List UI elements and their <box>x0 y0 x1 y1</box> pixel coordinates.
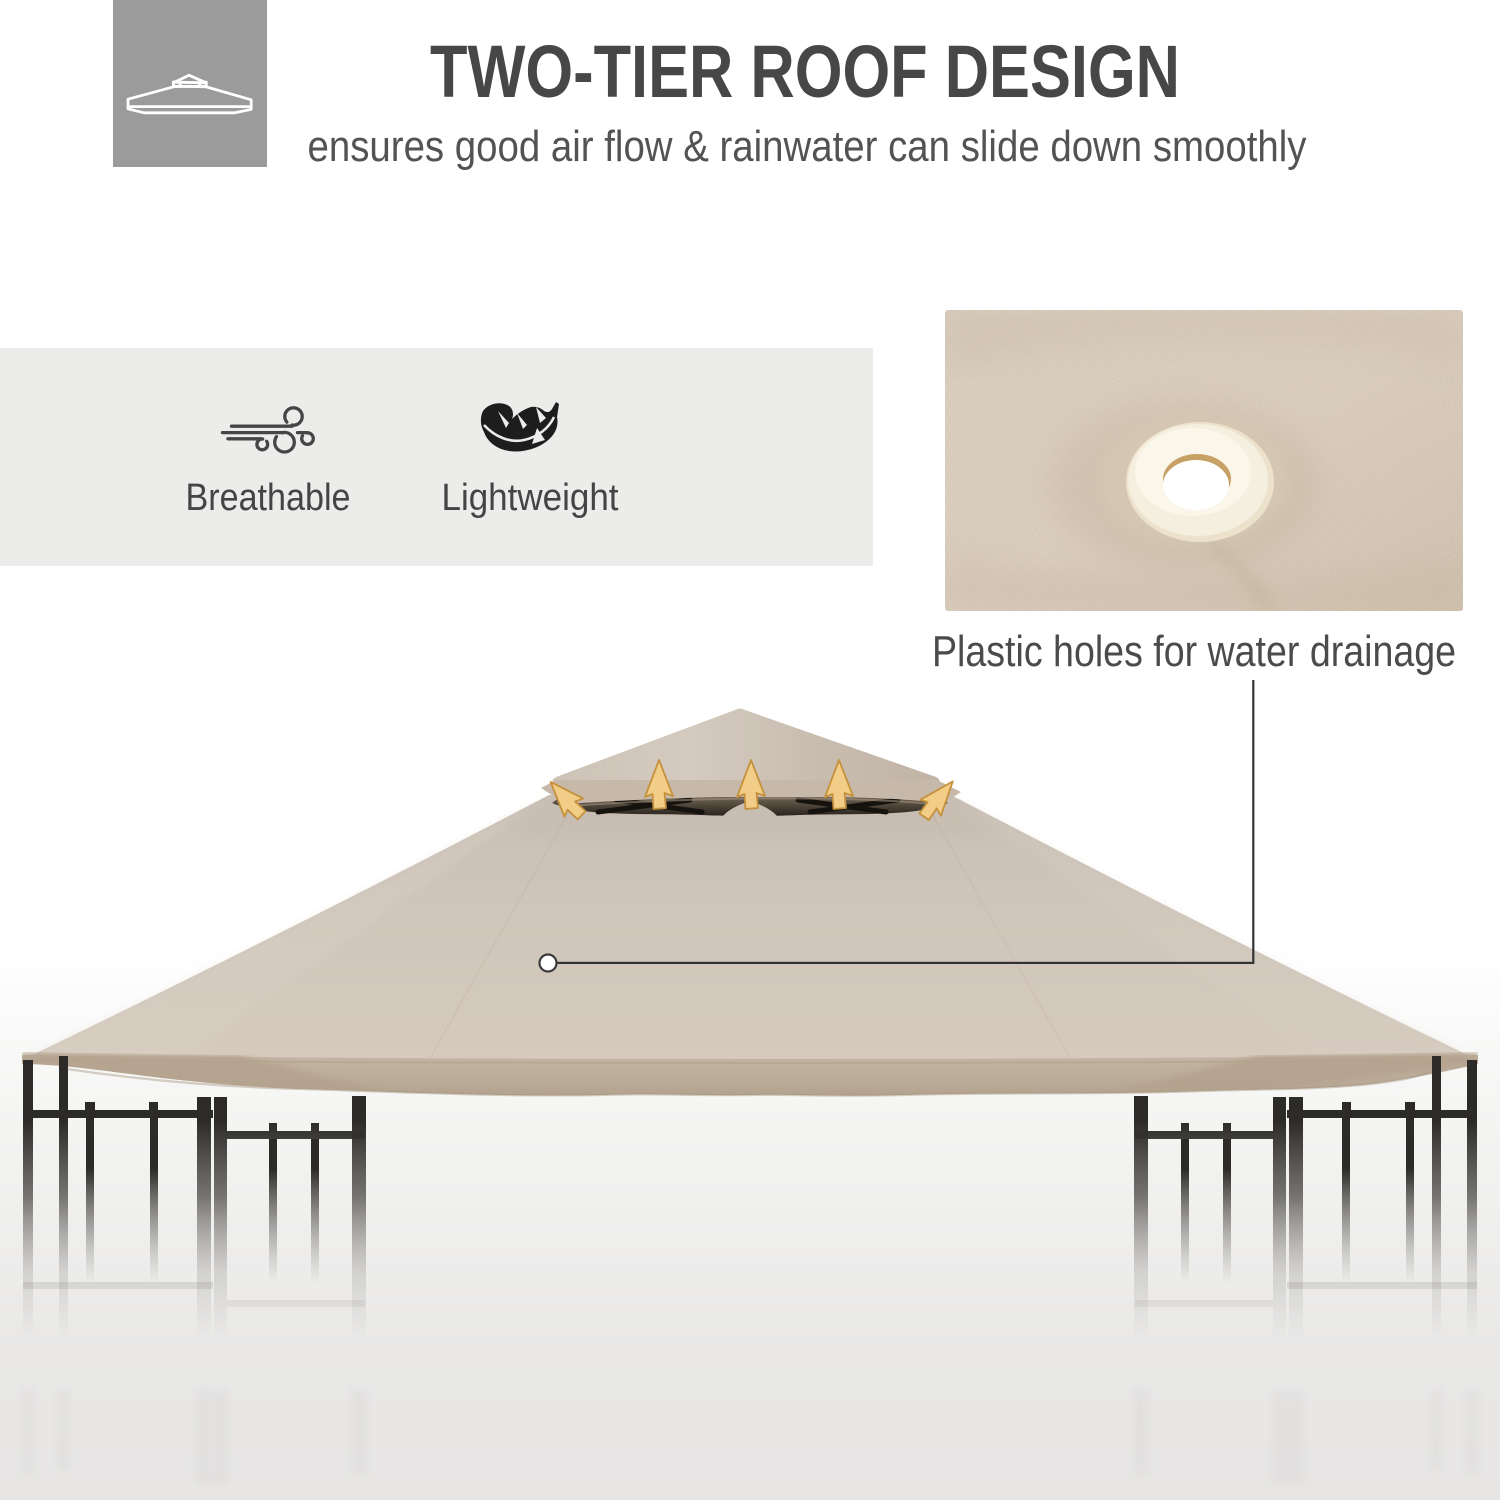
svg-text:Lightweight: Lightweight <box>442 477 619 519</box>
svg-text:Breathable: Breathable <box>186 477 351 519</box>
svg-text:TWO-TIER ROOF DESIGN: TWO-TIER ROOF DESIGN <box>430 30 1180 113</box>
svg-text:ensures good air flow & rainwa: ensures good air flow & rainwater can sl… <box>308 122 1307 171</box>
